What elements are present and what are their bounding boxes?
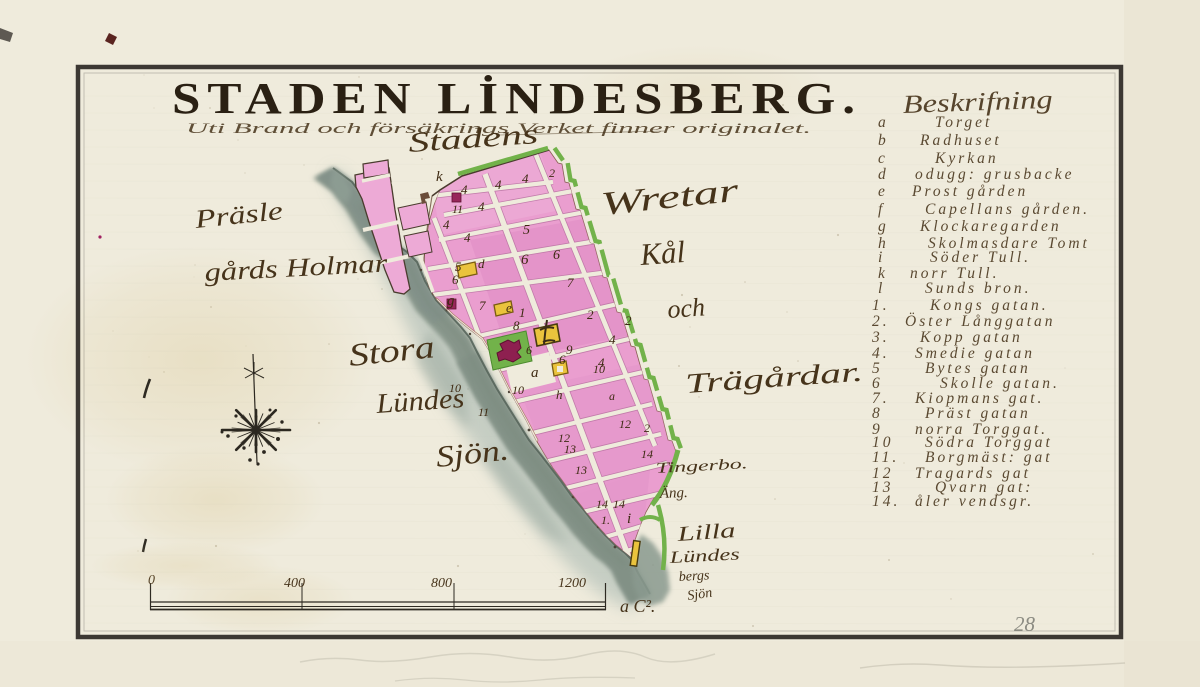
svg-text:14: 14 (641, 447, 653, 461)
svg-text:l: l (878, 280, 885, 297)
svg-text:14: 14 (613, 497, 625, 511)
svg-text:Kongs gatan.: Kongs gatan. (929, 297, 1049, 314)
svg-text:a: a (531, 365, 539, 381)
svg-text:h: h (556, 387, 563, 402)
svg-text:4: 4 (522, 171, 529, 186)
svg-text:och: och (666, 292, 705, 324)
svg-text:g: g (878, 218, 889, 235)
svg-text:Öster Långgatan: Öster Långgatan (905, 313, 1056, 330)
svg-text:bergs: bergs (678, 568, 710, 585)
svg-text:4: 4 (443, 217, 450, 232)
svg-text:1: 1 (519, 305, 526, 320)
svg-text:6: 6 (559, 352, 566, 367)
svg-text:Prost gården: Prost gården (911, 183, 1028, 200)
svg-text:Kyrkan: Kyrkan (934, 150, 999, 167)
svg-text:8: 8 (513, 318, 520, 333)
svg-text:Lündes: Lündes (668, 544, 741, 567)
svg-text:d: d (478, 256, 485, 271)
svg-text:Äng.: Äng. (659, 484, 688, 502)
svg-text:a: a (609, 389, 615, 403)
svg-text:5: 5 (523, 223, 530, 238)
svg-text:4: 4 (464, 230, 471, 245)
svg-text:odugg: grusbacke: odugg: grusbacke (915, 166, 1075, 183)
svg-text:10: 10 (593, 362, 605, 376)
svg-text:Söder Tull.: Söder Tull. (930, 249, 1031, 266)
svg-text:Torget: Torget (935, 114, 992, 131)
svg-text:10: 10 (512, 383, 524, 397)
svg-text:g: g (447, 293, 455, 309)
svg-text:7: 7 (479, 298, 486, 313)
svg-text:11: 11 (452, 202, 463, 216)
svg-text:d: d (878, 166, 889, 183)
svg-text:1.: 1. (872, 297, 890, 314)
svg-text:14.: 14. (872, 493, 900, 510)
svg-text:k: k (436, 169, 443, 185)
svg-text:e: e (878, 183, 888, 200)
svg-text:4: 4 (461, 182, 468, 197)
svg-text:2: 2 (587, 307, 594, 322)
svg-text:b: b (878, 132, 889, 149)
svg-text:åler vendsgr.: åler vendsgr. (915, 493, 1034, 510)
svg-text:Präst gatan: Präst gatan (924, 405, 1031, 422)
svg-text:1.: 1. (601, 513, 610, 527)
svg-text:6: 6 (521, 252, 529, 268)
svg-text:a: a (878, 114, 889, 131)
svg-text:13: 13 (575, 463, 587, 477)
svg-text:Borgmäst: gat: Borgmäst: gat (925, 449, 1053, 466)
svg-text:e: e (506, 300, 512, 315)
svg-text:4: 4 (609, 332, 616, 347)
svg-text:6: 6 (553, 248, 560, 263)
svg-text:11.: 11. (872, 449, 899, 466)
svg-text:2: 2 (625, 313, 632, 328)
svg-text:1200: 1200 (558, 576, 586, 591)
svg-text:2: 2 (549, 166, 555, 180)
svg-text:6: 6 (452, 272, 459, 287)
svg-text:Kål: Kål (638, 234, 686, 272)
svg-text:Lündes: Lündes (374, 383, 465, 420)
svg-text:Sunds bron.: Sunds bron. (925, 280, 1032, 297)
svg-text:14: 14 (596, 497, 608, 511)
svg-text:13: 13 (564, 442, 576, 456)
svg-text:800: 800 (431, 576, 452, 591)
svg-text:i: i (627, 511, 631, 527)
svg-text:6: 6 (526, 343, 532, 357)
svg-text:9: 9 (566, 342, 573, 357)
svg-text:2.: 2. (872, 313, 890, 330)
svg-text:Lilla: Lilla (675, 518, 736, 546)
svg-text:28: 28 (1014, 612, 1036, 636)
svg-text:Kopp gatan: Kopp gatan (919, 329, 1023, 346)
svg-text:f: f (878, 201, 885, 218)
svg-text:400: 400 (284, 576, 305, 591)
svg-text:c: c (878, 150, 888, 167)
svg-text:12: 12 (619, 417, 631, 431)
svg-text:a C².: a C². (620, 596, 655, 616)
svg-text:Radhuset: Radhuset (919, 132, 1002, 149)
svg-text:11: 11 (478, 405, 489, 419)
svg-text:Capellans gården.: Capellans gården. (925, 201, 1090, 218)
svg-text:STADEN LİNDESBERG.: STADEN LİNDESBERG. (172, 74, 862, 123)
svg-text:2: 2 (644, 421, 650, 435)
svg-text:4: 4 (495, 177, 502, 192)
svg-text:8: 8 (872, 405, 883, 422)
svg-text:4: 4 (478, 199, 485, 214)
svg-text:3.: 3. (871, 329, 890, 346)
svg-text:Klockaregarden: Klockaregarden (919, 218, 1062, 235)
svg-text:7: 7 (567, 275, 574, 290)
svg-text:i: i (878, 249, 885, 266)
